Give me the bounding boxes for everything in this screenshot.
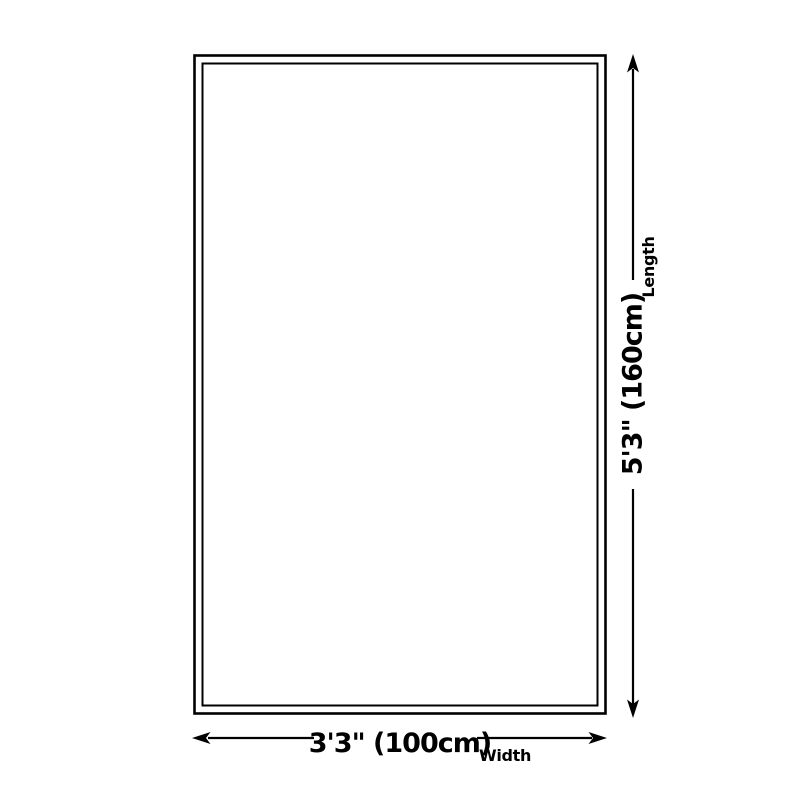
- dimension-diagram: 5'3" (160cm) Length 3'3" (100cm) Width: [0, 0, 800, 800]
- arrow-left-icon: [192, 732, 211, 744]
- width-value: 3'3" (100cm): [309, 728, 491, 759]
- diagram-svg: 5'3" (160cm) Length 3'3" (100cm) Width: [0, 0, 800, 800]
- length-label: Length: [639, 236, 658, 297]
- width-label: Width: [479, 746, 531, 765]
- product-outline-outer: [195, 56, 606, 714]
- length-value: 5'3" (160cm): [618, 293, 649, 475]
